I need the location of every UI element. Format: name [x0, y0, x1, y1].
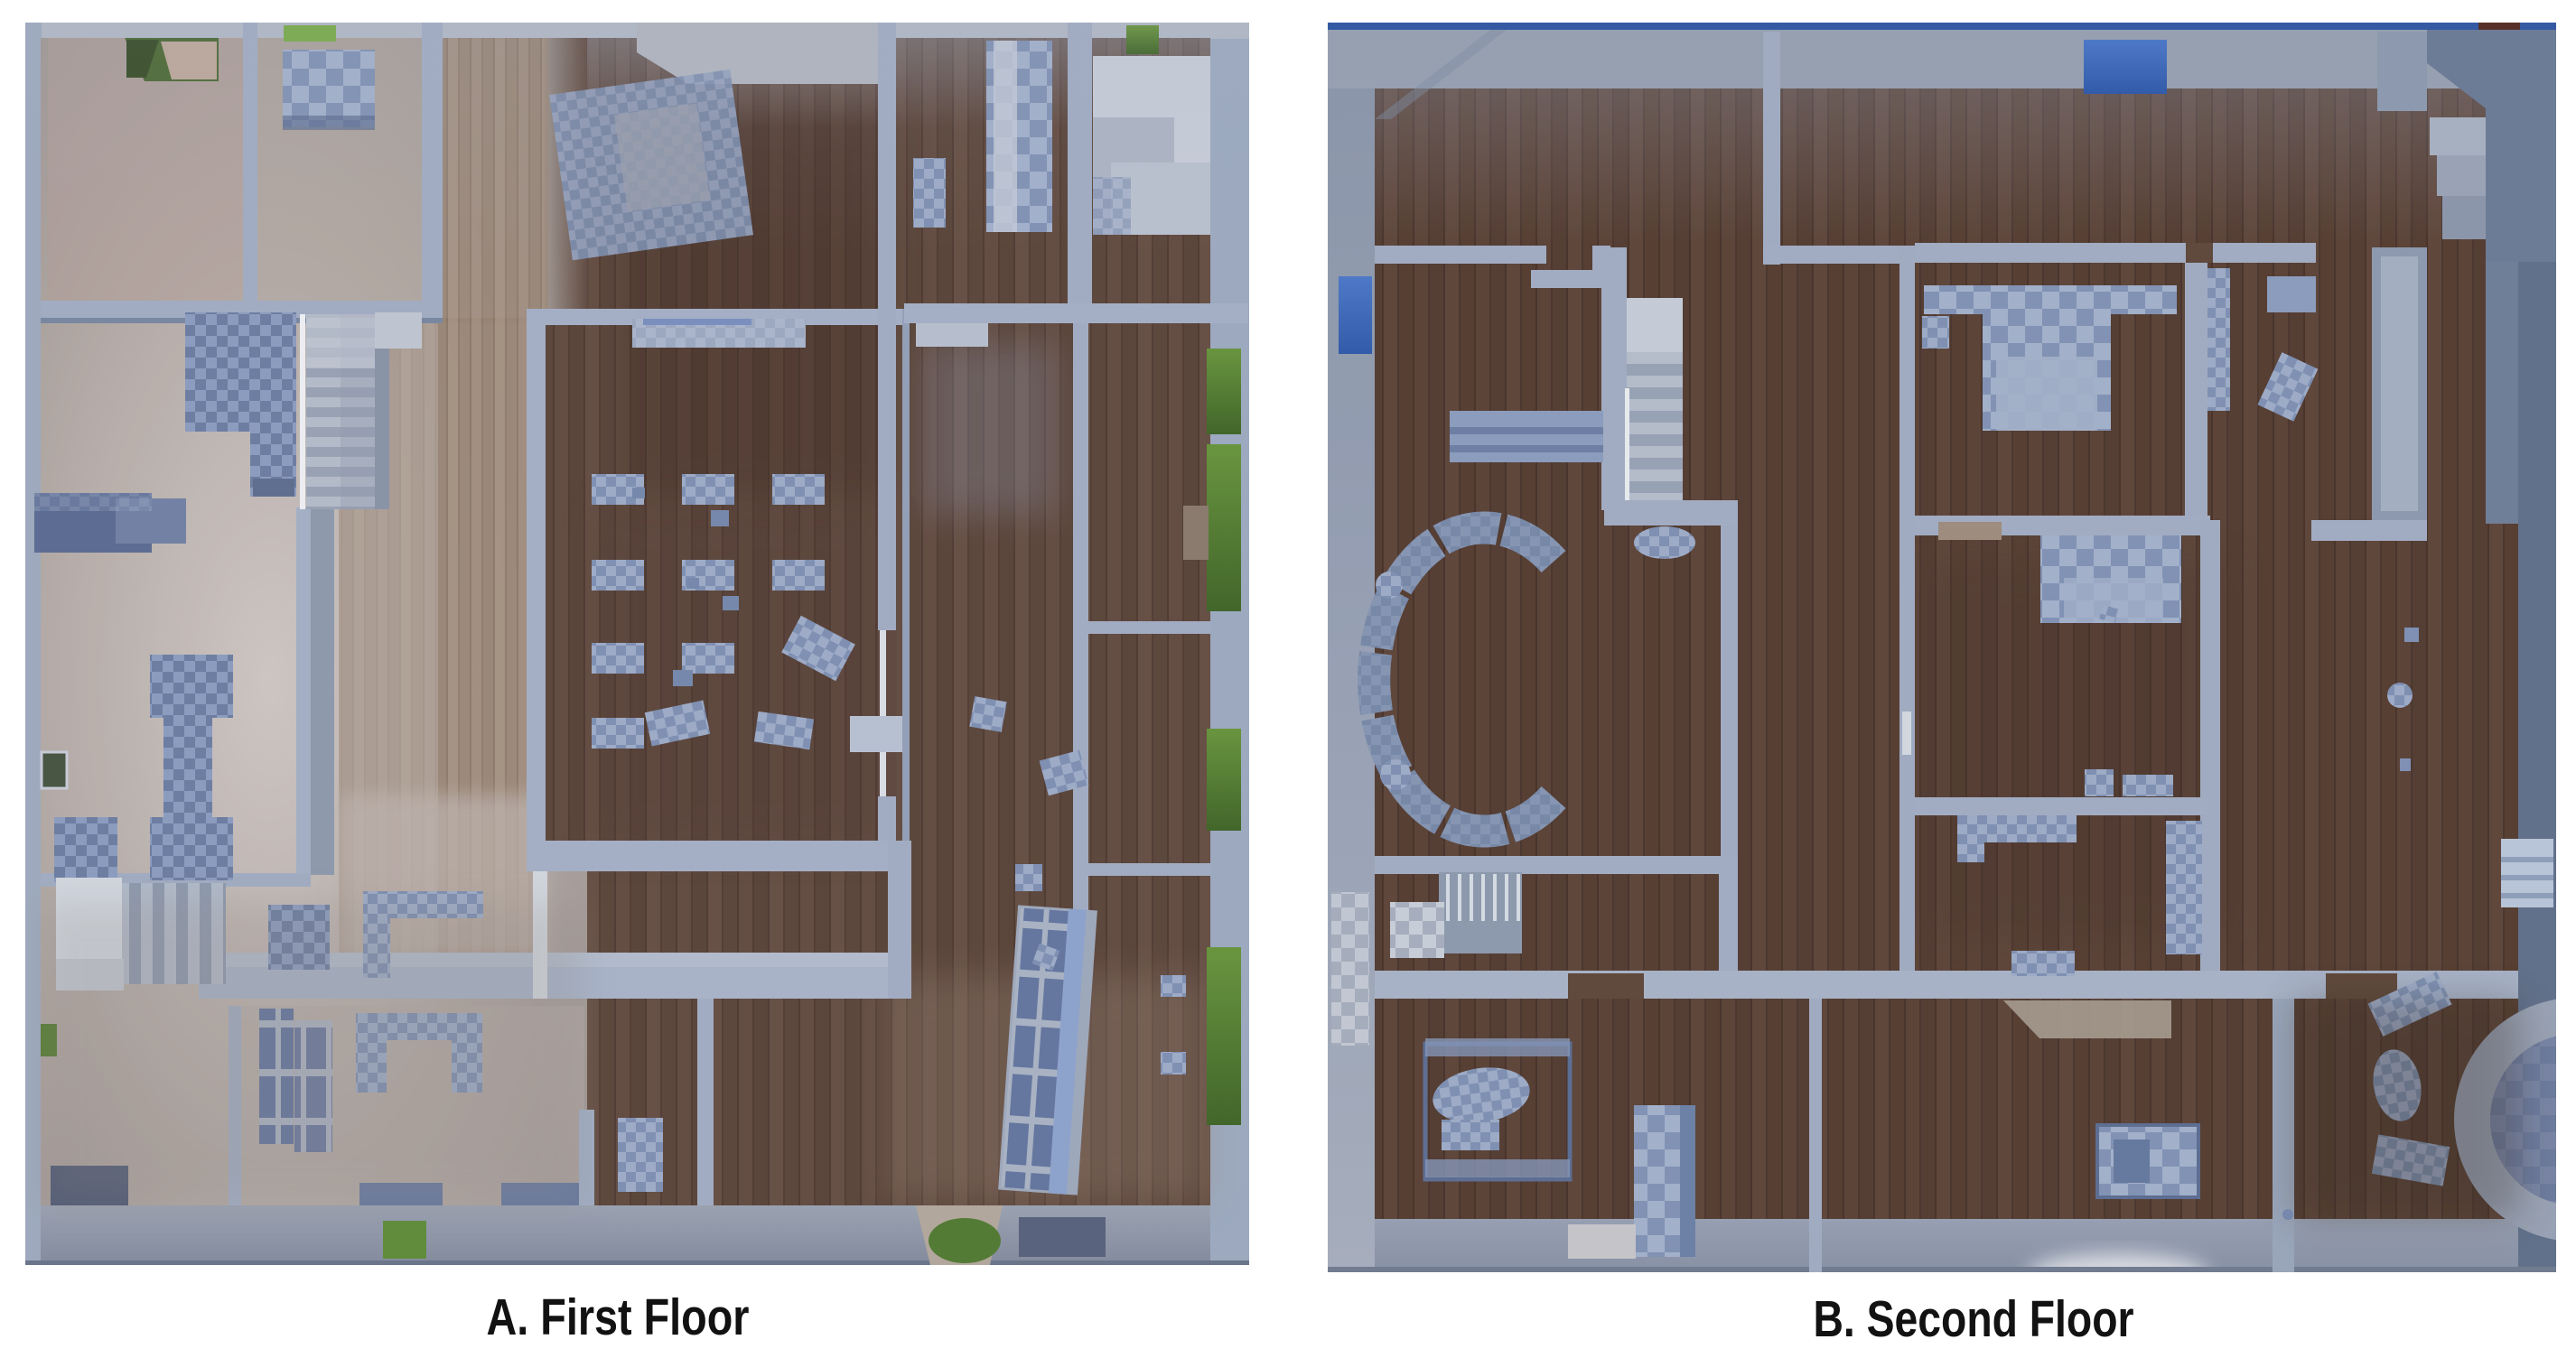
svg-text:B. Second Floor: B. Second Floor — [1814, 1290, 2134, 1348]
svg-text:A. First Floor: A. First Floor — [487, 1288, 750, 1346]
